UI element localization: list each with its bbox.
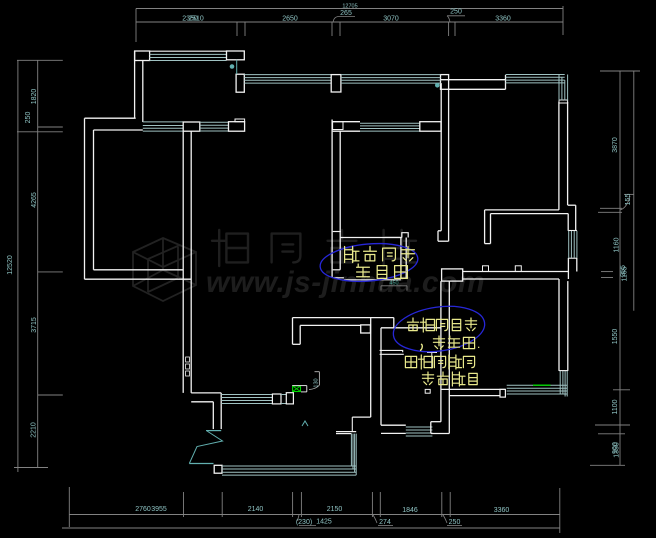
svg-text:12520: 12520: [7, 255, 14, 275]
svg-text:265: 265: [340, 10, 352, 17]
svg-text:3715: 3715: [31, 317, 38, 333]
svg-text:2150: 2150: [327, 506, 343, 513]
svg-text:130: 130: [314, 378, 320, 387]
svg-text:.: .: [477, 337, 480, 351]
svg-text:250: 250: [449, 519, 461, 526]
svg-text:1425: 1425: [316, 519, 332, 526]
svg-text:1820: 1820: [31, 89, 38, 105]
svg-text:3360: 3360: [495, 16, 511, 23]
svg-text:250: 250: [25, 112, 32, 124]
svg-text:2510: 2510: [188, 16, 204, 23]
svg-text:2760: 2760: [135, 506, 151, 513]
svg-text:3360: 3360: [494, 507, 510, 514]
svg-text:4265: 4265: [31, 192, 38, 208]
svg-text:3070: 3070: [383, 16, 399, 23]
svg-text:(230): (230): [296, 519, 312, 526]
svg-text:274: 274: [379, 519, 391, 526]
svg-text:1350: 1350: [614, 442, 621, 458]
svg-text:2210: 2210: [31, 422, 38, 438]
svg-text:2650: 2650: [282, 16, 298, 23]
svg-text:1550: 1550: [612, 329, 619, 345]
svg-text:155: 155: [625, 194, 632, 206]
svg-text:3870: 3870: [612, 137, 619, 153]
svg-text:1160: 1160: [614, 237, 621, 252]
svg-text:2140: 2140: [248, 506, 264, 513]
svg-text:1165: 1165: [622, 266, 629, 281]
svg-text:1100: 1100: [612, 399, 619, 414]
svg-text:1846: 1846: [402, 507, 418, 514]
svg-text:250: 250: [450, 9, 462, 16]
svg-text:www.js-jinhua.com: www.js-jinhua.com: [206, 266, 485, 299]
svg-text:3955: 3955: [151, 506, 167, 513]
svg-text:450: 450: [389, 281, 398, 287]
svg-text:12705: 12705: [342, 4, 357, 10]
